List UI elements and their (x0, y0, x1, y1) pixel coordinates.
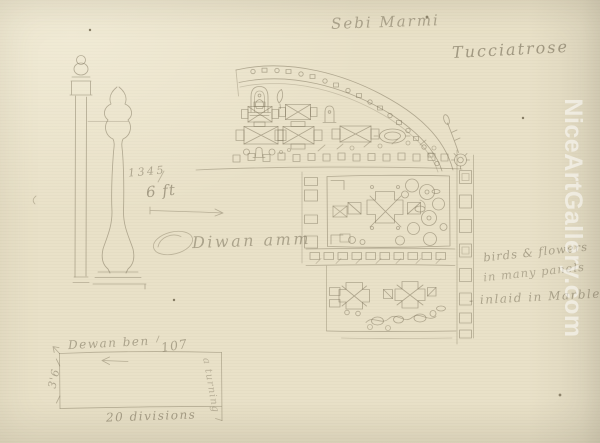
lower-panel-sketch (327, 266, 457, 339)
side-note-line1: birds & flowers (483, 240, 589, 265)
diagram-right-note: a turning (200, 357, 222, 420)
middle-panel-sketch (302, 172, 450, 263)
figure-number: 1345 (128, 163, 167, 179)
middle-band-sketch (306, 248, 455, 265)
paper-speckles (89, 16, 561, 396)
pencil-line-art (0, 0, 600, 443)
gallery-watermark: NiceArtGallery.com (553, 91, 587, 345)
squares-row-sketch (196, 153, 462, 170)
right-border-strip-sketch (442, 114, 473, 344)
script-flourish-sketch (151, 227, 195, 258)
height-dimension: 6 ft (145, 181, 176, 202)
diagram-bottom-label: 20 divisions (106, 407, 197, 424)
side-note-line2: in many panels (483, 260, 586, 285)
side-note-line3: - inlaid in Marble (469, 287, 600, 308)
inscription-top-right: Tucciatrose (452, 37, 570, 62)
measure-diagram-sketch (53, 336, 222, 421)
diagram-number: 107 (160, 336, 189, 355)
diagram-left-dimension: 3'6 (46, 367, 63, 389)
artwork-canvas: Sebi Marmi Tucciatrose birds & flowers i… (0, 0, 600, 443)
inscription-diwan-amm: Diwan amm (192, 229, 312, 252)
arch-band-sketch (236, 66, 453, 172)
baluster-sketch (33, 56, 223, 290)
spandrel-ornaments-sketch (236, 87, 436, 158)
diagram-label: Dewan ben (68, 334, 150, 352)
inscription-top-center: Sebi Marmi (331, 11, 440, 33)
